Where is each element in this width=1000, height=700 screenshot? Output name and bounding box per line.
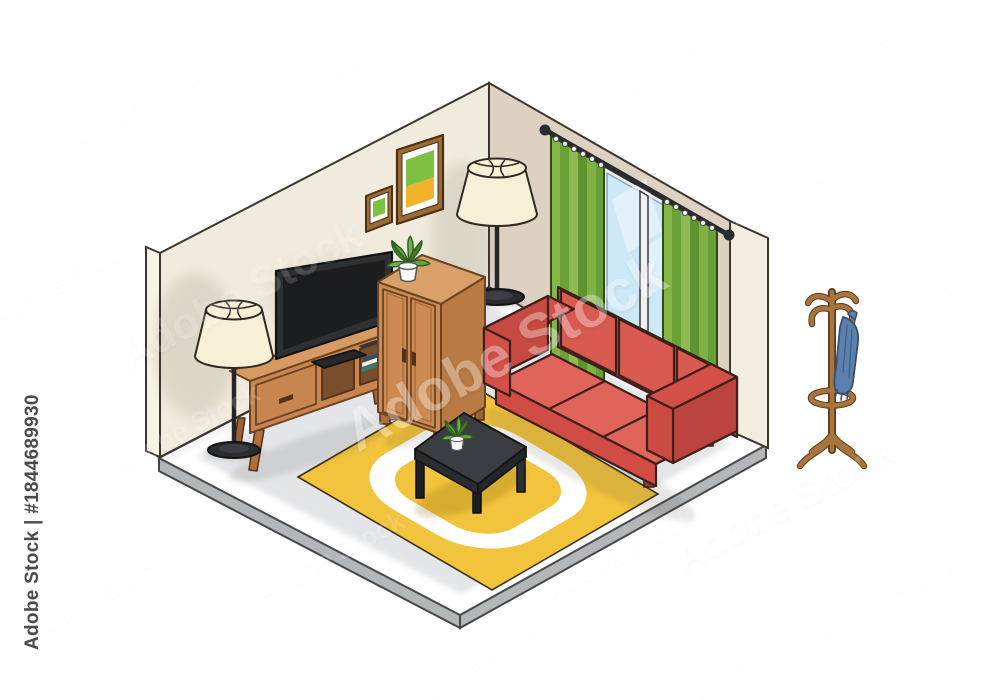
right-arm-front: [647, 396, 673, 463]
picture-frame-large: [397, 135, 443, 224]
door-handle: [412, 352, 416, 367]
left-arm-front: [484, 328, 510, 396]
stock-image-canvas: Adobe Stock Adobe Stock Adobe Stock Adob…: [0, 0, 1000, 700]
door-handle: [402, 348, 406, 363]
coat-rack: [800, 292, 864, 466]
hanging-garment: [834, 311, 858, 400]
living-room-illustration: [0, 0, 1000, 700]
rod-finial-left: [540, 125, 551, 136]
window-mullion: [640, 191, 648, 333]
rod-finial-right: [724, 230, 735, 241]
watermark-attribution: Adobe Stock | #1844689930: [22, 394, 44, 650]
